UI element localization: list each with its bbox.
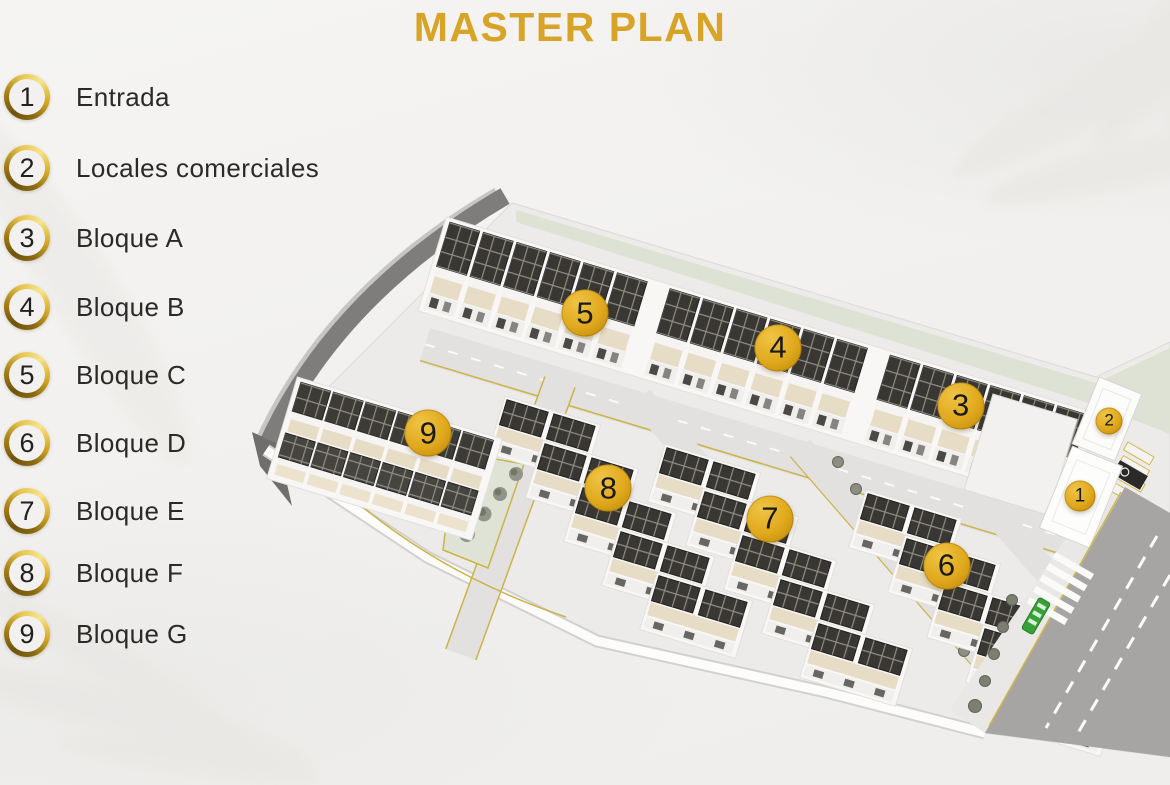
site-render — [0, 0, 1170, 785]
master-plan-graphic: MASTER PLAN 1Entrada2Locales comerciales… — [0, 0, 1170, 785]
